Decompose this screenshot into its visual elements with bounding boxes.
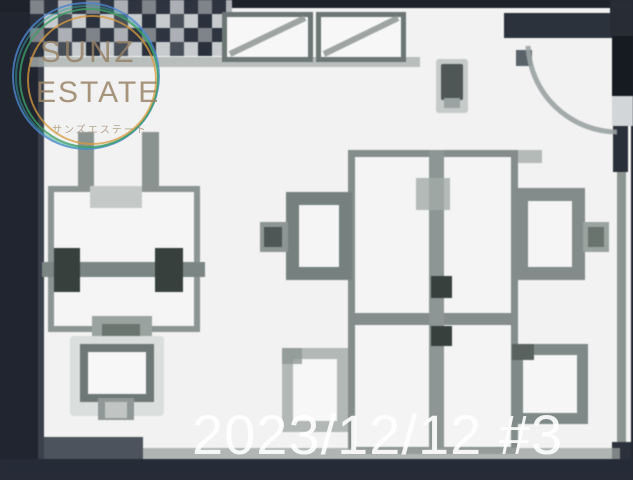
desk-chair-tucked-top (90, 186, 142, 208)
table-cable-box-2 (431, 326, 452, 346)
window-with-cross-1 (222, 12, 313, 62)
meeting-table-divider-cap (416, 178, 450, 210)
desk-lower-chair (80, 344, 154, 402)
watermark-brand-japanese: サンズエステート (52, 121, 148, 136)
chair-left-top (286, 192, 352, 280)
desk-monitor-right (155, 248, 183, 292)
desk-lower-chair-backrest-core (105, 402, 127, 418)
top-right-corner-dark (610, 0, 633, 36)
top-right-wall (504, 13, 612, 38)
desk-monitor-left (54, 248, 80, 292)
window-with-cross-2 (316, 12, 406, 62)
right-edge-light-gap (612, 96, 633, 126)
chair-left-top-backrest-core (264, 227, 282, 247)
wall-panel-base (444, 98, 460, 108)
watermark-brand-line2: ESTATE (36, 76, 160, 110)
door-hinge (516, 50, 532, 66)
watermark-brand-line1: SUNZ (40, 34, 136, 70)
floorplan-photo: SUNZ ESTATE サンズエステート 2023/12/12 #3 (0, 0, 633, 480)
chair-left-bottom-corner (282, 348, 302, 364)
photo-left-dark-edge (0, 0, 38, 480)
desk-chair-back-2 (142, 132, 159, 190)
chair-right-top-backrest-core (588, 227, 604, 247)
date-stamp: 2023/12/12 #3 (192, 402, 563, 467)
right-edge-dark-block (612, 36, 633, 96)
right-wall (617, 172, 626, 442)
desk-chair-back-1 (78, 132, 94, 190)
table-top-edge-extension (518, 150, 542, 163)
right-edge-dark-block-2 (613, 126, 628, 172)
chair-right-top (515, 188, 585, 280)
table-cable-box-1 (431, 276, 452, 298)
bottom-left-wall-corner (44, 437, 143, 461)
wall-panel-screen (441, 64, 463, 100)
chair-right-bottom-corner (512, 344, 534, 360)
